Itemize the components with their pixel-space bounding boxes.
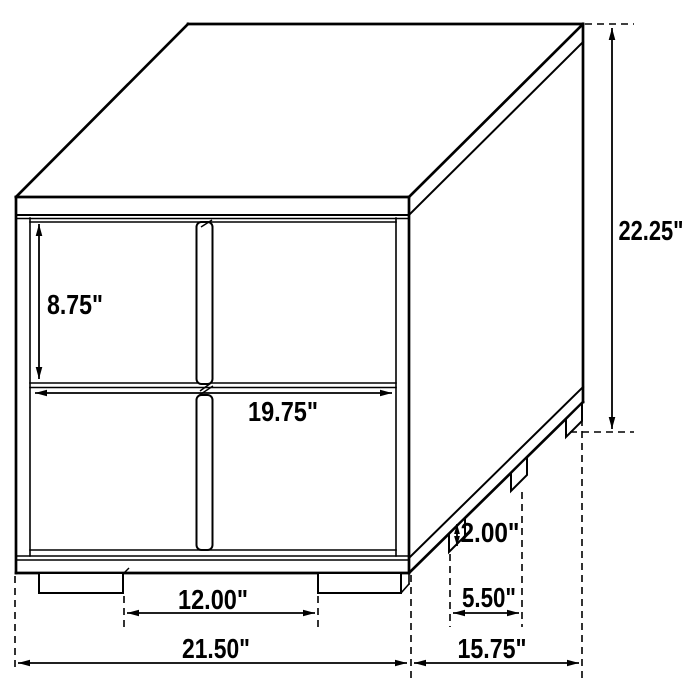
front-right-leg [318,573,401,593]
dim-front-leg-spacing: 12.00" [127,584,315,615]
dim-overall-height: 22.25" [612,28,684,429]
handle-strip-lower [197,395,213,550]
handle-strip-upper [197,222,213,384]
side-leg-middle [511,457,527,491]
dim-overall-depth: 15.75" [414,633,579,664]
drawer-width-label: 19.75" [248,396,318,427]
nightstand-dimension-drawing: 22.25" 8.75" 19.75" 2.00" 12.00" [0,0,700,700]
leg-height-label: 2.00" [461,517,520,548]
dim-overall-width: 21.50" [18,633,407,664]
dim-drawer-width: 19.75" [248,396,318,427]
drawer-face-height-label: 8.75" [47,289,103,320]
dim-side-leg-spacing: 5.50" [453,582,519,613]
overall-height-label: 22.25" [619,215,684,246]
dim-drawer-face-height: 8.75" [39,224,103,379]
drawer-handle-strips [197,220,214,550]
overall-width-label: 21.50" [182,633,250,664]
overall-depth-label: 15.75" [458,633,527,664]
front-leg-spacing-label: 12.00" [178,584,248,615]
cabinet-top-face [16,24,583,215]
front-left-leg [39,573,123,593]
side-leg-spacing-label: 5.50" [462,582,516,613]
dim-leg-height: 2.00" [457,517,520,548]
dimension-diagram: 22.25" 8.75" 19.75" 2.00" 12.00" [0,0,700,700]
